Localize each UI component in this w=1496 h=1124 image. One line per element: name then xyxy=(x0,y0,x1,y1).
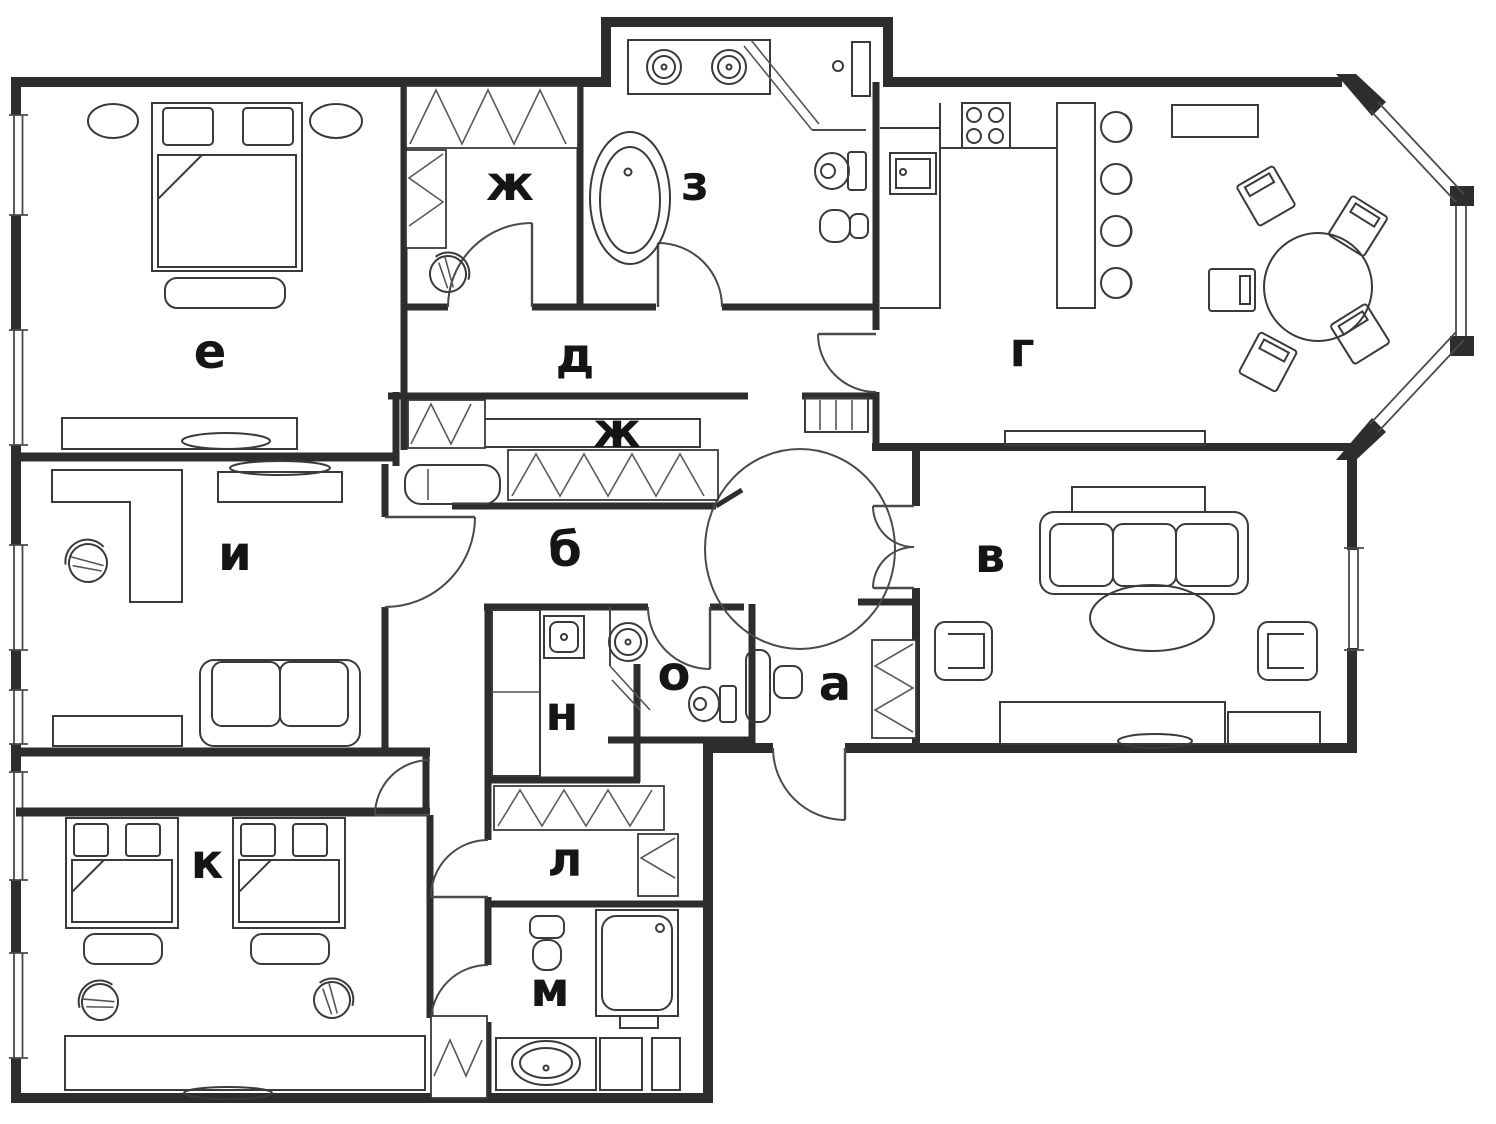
vanity xyxy=(628,40,770,94)
tv-stand xyxy=(1000,702,1225,744)
kitchen-counter xyxy=(880,103,1057,308)
toilet xyxy=(815,152,866,190)
dresser xyxy=(62,418,297,449)
bench xyxy=(84,934,162,964)
room-label-wardrobe-top: ж xyxy=(486,156,534,212)
floor-plan-canvas: е ж з д г ж и б в о а н к л м xyxy=(0,0,1496,1124)
window xyxy=(9,690,28,744)
cabinet xyxy=(600,1038,642,1090)
dining-chair xyxy=(1328,195,1388,256)
nightstand xyxy=(88,104,138,138)
cabinet xyxy=(1228,712,1320,744)
bay-post xyxy=(1336,74,1386,116)
pillow xyxy=(293,824,327,856)
bar-stool xyxy=(1101,164,1132,194)
bay-post xyxy=(1450,186,1474,206)
bench xyxy=(405,465,500,504)
study-furniture xyxy=(52,461,360,746)
sideboard xyxy=(1005,431,1205,445)
door-study xyxy=(385,517,475,607)
room-label-laundry: н xyxy=(545,686,578,742)
french-doors-living xyxy=(873,506,914,588)
wardrobe-lower-fittings xyxy=(494,786,678,896)
bench xyxy=(251,934,329,964)
bar-stool xyxy=(1101,112,1132,142)
window xyxy=(9,953,28,1058)
pillow xyxy=(163,108,213,145)
shower-glass xyxy=(744,40,819,130)
desk-chair xyxy=(305,971,360,1026)
room-label-corridor: б xyxy=(548,522,582,578)
bathroom2-fixtures xyxy=(496,910,680,1090)
room-label-bedroom-kids: к xyxy=(191,834,224,890)
window xyxy=(9,772,28,880)
bidet xyxy=(820,210,868,242)
bay-post xyxy=(1450,336,1474,356)
room-label-bathroom-second: м xyxy=(530,962,569,1018)
room-label-bathroom-main: з xyxy=(681,156,709,212)
room-label-hallway-upper: д xyxy=(556,328,595,384)
door-wardrobe-lower xyxy=(431,840,488,897)
shower-shelf xyxy=(852,42,870,96)
kitchen-fixtures xyxy=(880,103,1258,445)
bay-window xyxy=(1370,102,1466,432)
window xyxy=(9,330,28,445)
stool xyxy=(774,666,802,698)
room-label-wc: о xyxy=(658,646,691,702)
dining-chair xyxy=(1239,332,1298,392)
dresser xyxy=(218,472,342,502)
pillow xyxy=(74,824,108,856)
entrance-door xyxy=(773,748,845,820)
door-bathroom-second xyxy=(431,965,488,1022)
vanity xyxy=(496,1038,596,1090)
shower-tub xyxy=(596,910,678,1028)
dining-chair xyxy=(1236,166,1295,227)
door-kitchen xyxy=(818,334,876,392)
door-wardrobe-top xyxy=(448,223,532,307)
circular-hall xyxy=(705,449,895,649)
sofa-small xyxy=(200,660,360,746)
window xyxy=(1344,548,1364,650)
room-label-living-room: в xyxy=(975,528,1005,584)
pillow xyxy=(241,824,275,856)
pillow xyxy=(126,824,160,856)
master-bedroom-furniture xyxy=(62,103,362,449)
bar-counter xyxy=(1057,103,1095,308)
bar-stool xyxy=(1101,268,1132,298)
living-room-furniture xyxy=(935,487,1320,748)
desk xyxy=(52,470,182,602)
desk-long xyxy=(65,1036,425,1090)
cabinet xyxy=(652,1038,680,1090)
console-table xyxy=(1072,487,1205,512)
door-bathroom-main xyxy=(658,243,722,307)
room-label-wardrobe-middle: ж xyxy=(593,403,641,459)
door-kids-room xyxy=(375,760,430,815)
main-bathroom-fixtures xyxy=(590,40,870,264)
room-label-bedroom-master: е xyxy=(194,324,227,380)
kids-bedroom-furniture xyxy=(65,818,425,1099)
wardrobe-middle-fittings xyxy=(405,400,718,504)
bay-post xyxy=(1336,418,1386,460)
office-chair xyxy=(59,533,115,589)
bar-stool xyxy=(1101,216,1132,246)
desk-chair xyxy=(71,973,126,1028)
armchair xyxy=(935,622,992,680)
kitchen-cabinet xyxy=(1172,105,1258,137)
room-label-wardrobe-lower: л xyxy=(547,832,582,888)
dining-chair xyxy=(1209,269,1255,311)
room-label-entrance-hall: а xyxy=(819,656,851,712)
window xyxy=(9,115,28,215)
toilet xyxy=(689,686,736,722)
pillow xyxy=(243,108,293,145)
radiator xyxy=(182,433,270,449)
dining-chair xyxy=(1330,303,1390,364)
bathtub xyxy=(590,132,670,264)
single-bed xyxy=(66,818,178,964)
shelf xyxy=(450,419,700,447)
bench xyxy=(165,278,285,308)
dining-set xyxy=(1209,166,1390,393)
corridor-closet xyxy=(431,1016,487,1098)
cabinet xyxy=(492,610,540,776)
floor-plan: е ж з д г ж и б в о а н к л м xyxy=(0,0,1496,1124)
cabinet xyxy=(53,716,182,746)
room-label-kitchen-dining: г xyxy=(1009,322,1034,378)
single-bed xyxy=(233,818,345,964)
nightstand xyxy=(310,104,362,138)
hall-cabinet xyxy=(805,398,868,432)
room-label-study: и xyxy=(218,526,252,582)
armchair xyxy=(1258,622,1317,680)
sofa xyxy=(1040,512,1248,594)
window xyxy=(9,545,28,650)
dining-table xyxy=(1264,233,1372,341)
